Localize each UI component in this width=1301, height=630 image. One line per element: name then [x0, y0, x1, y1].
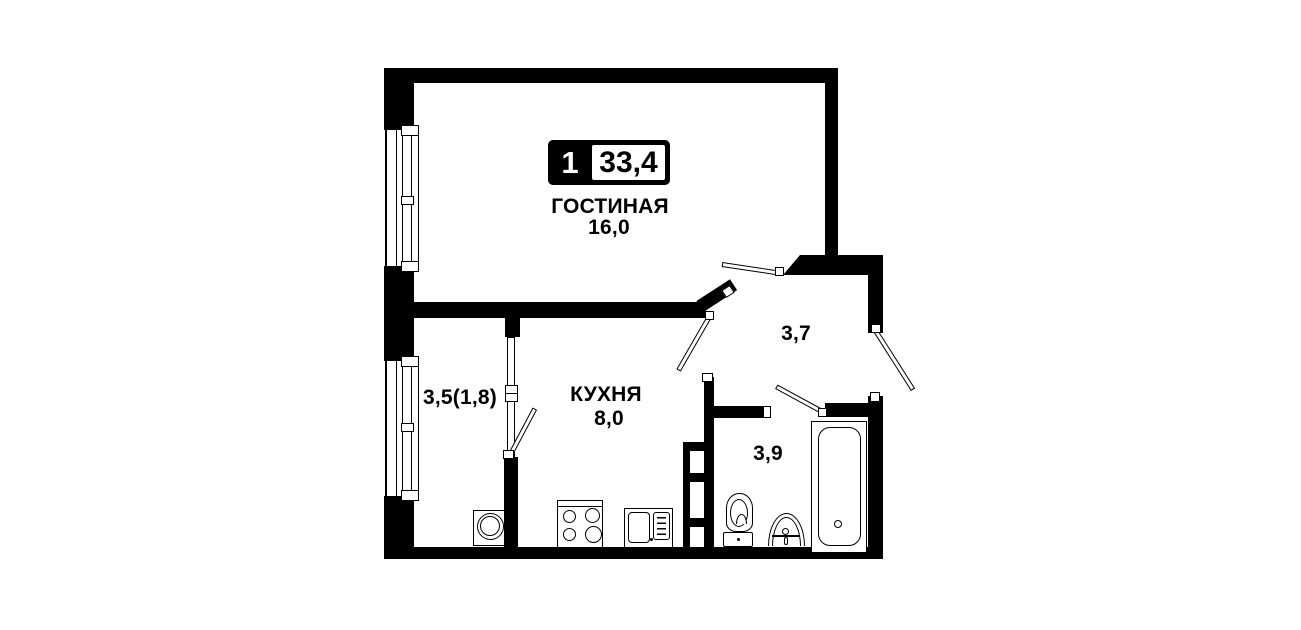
total-area: 33,4	[592, 145, 665, 180]
livingroom-window-divider	[401, 196, 414, 205]
vent-shaft-rail	[683, 442, 690, 548]
bathroom-door-leaf	[775, 384, 823, 413]
livingroom-window-glazing-line	[385, 130, 387, 266]
right-wall-jamb	[870, 392, 880, 402]
wall-diagonal-end	[696, 279, 737, 312]
bathroom-sink-faucet-stem	[784, 537, 788, 545]
wall-livingroom-bottom	[414, 302, 706, 318]
stove-burner	[585, 526, 602, 543]
kitchen-label: КУХНЯ	[570, 383, 642, 407]
wall-bathroom-top-left	[714, 406, 766, 418]
toilet-seat-detail	[736, 514, 747, 524]
livingroom-window-notch	[401, 125, 419, 136]
livingroom-window-glazing-line	[396, 130, 398, 266]
wall-left-pier-mid	[384, 266, 414, 361]
vent-shaft-rung	[683, 442, 706, 451]
hallway-area: 3,7	[781, 322, 811, 346]
bathtub-inner	[818, 427, 861, 546]
wall-left-pier-top	[384, 68, 414, 130]
wall-top	[384, 68, 838, 83]
balcony-window-inner-line	[418, 361, 420, 496]
kitchen-door-leaf	[676, 316, 711, 371]
kitchen-sink-drain-dot	[650, 538, 654, 542]
stove-burner	[585, 508, 600, 523]
wall-livingroom-right	[825, 83, 838, 257]
balcony-window-glazing-line	[396, 361, 398, 496]
balcony-block-divider	[505, 393, 518, 402]
livingroom-door-leaf	[722, 262, 780, 276]
wall-balcony-top	[505, 318, 520, 337]
wall-hallway-top	[783, 255, 883, 275]
livingroom-window-inner-line	[418, 130, 420, 266]
balcony-window-divider	[401, 423, 414, 432]
bathroom-wall-jamb	[763, 406, 771, 418]
toilet-tank-dot	[737, 538, 740, 541]
stove-burner	[563, 510, 576, 523]
livingroom-window-notch	[401, 261, 419, 272]
balcony-window-notch	[401, 356, 419, 367]
vent-shaft-rung	[683, 473, 706, 482]
floorplan-canvas: 1 33,4 ГОСТИНАЯ 16,0 КУХНЯ 8,0 3,5(1,8) …	[0, 0, 1301, 630]
kitchen-sink-drainer	[653, 512, 670, 540]
kitchen-wall-jamb	[702, 373, 713, 382]
balcony-area: 3,5(1,8)	[423, 386, 497, 410]
balcony-window-glazing-line	[385, 361, 387, 496]
kitchen-area: 8,0	[594, 407, 624, 431]
bathroom-door-hinge	[818, 408, 827, 417]
bathroom-area: 3,9	[753, 442, 783, 466]
entrance-door-hinge	[871, 324, 881, 333]
livingroom-area: 16,0	[588, 216, 630, 240]
wall-balcony-bottom	[504, 457, 518, 548]
bathroom-sink-faucet	[782, 528, 789, 535]
kitchen-sink-basin	[628, 512, 650, 543]
wall-right-lower	[868, 396, 883, 548]
wall-bottom	[384, 547, 883, 559]
balcony-window-notch	[401, 490, 419, 501]
kitchen-door-hinge	[705, 311, 714, 320]
entrance-door-leaf	[874, 330, 915, 391]
balcony-door-hinge	[503, 450, 514, 459]
vent-shaft-rung	[683, 518, 706, 527]
room-count: 1	[548, 140, 592, 185]
kitchen-sink-drainer-ribs	[657, 517, 666, 535]
wall-bathroom-top-right	[825, 403, 868, 417]
wall-left-pier-bottom	[384, 496, 414, 548]
stove-burner	[563, 528, 576, 541]
bathtub-drain	[834, 520, 842, 528]
stove-top-line	[557, 506, 603, 508]
area-badge: 1 33,4	[548, 140, 670, 185]
washing-machine-drum-inner	[480, 516, 500, 536]
livingroom-door-hinge	[775, 267, 784, 276]
